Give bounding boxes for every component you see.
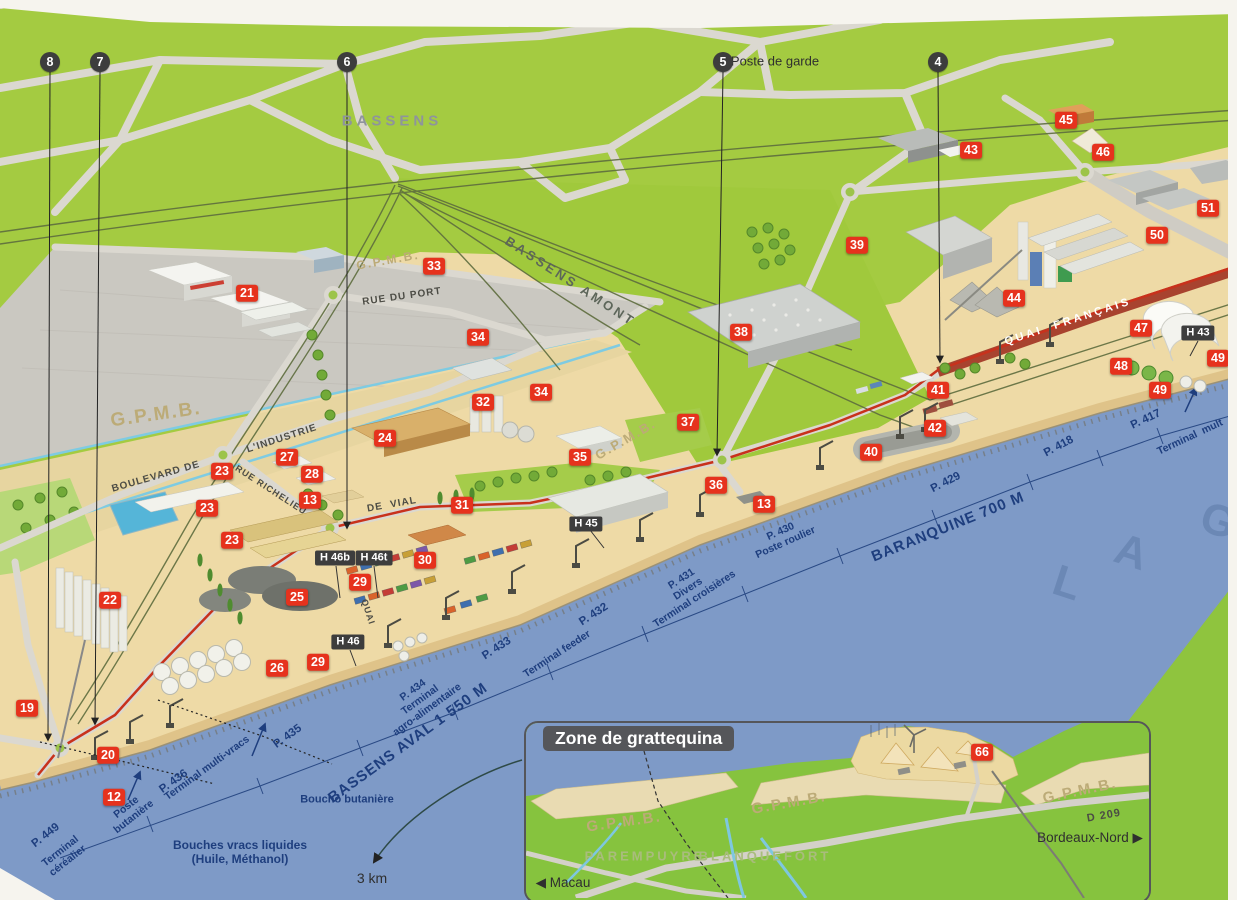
port-map: Zone de grattequina BASSENSBASSENS AMONT… [0,0,1237,900]
inset-title: Zone de grattequina [543,726,734,751]
scan-edge [1228,0,1237,900]
